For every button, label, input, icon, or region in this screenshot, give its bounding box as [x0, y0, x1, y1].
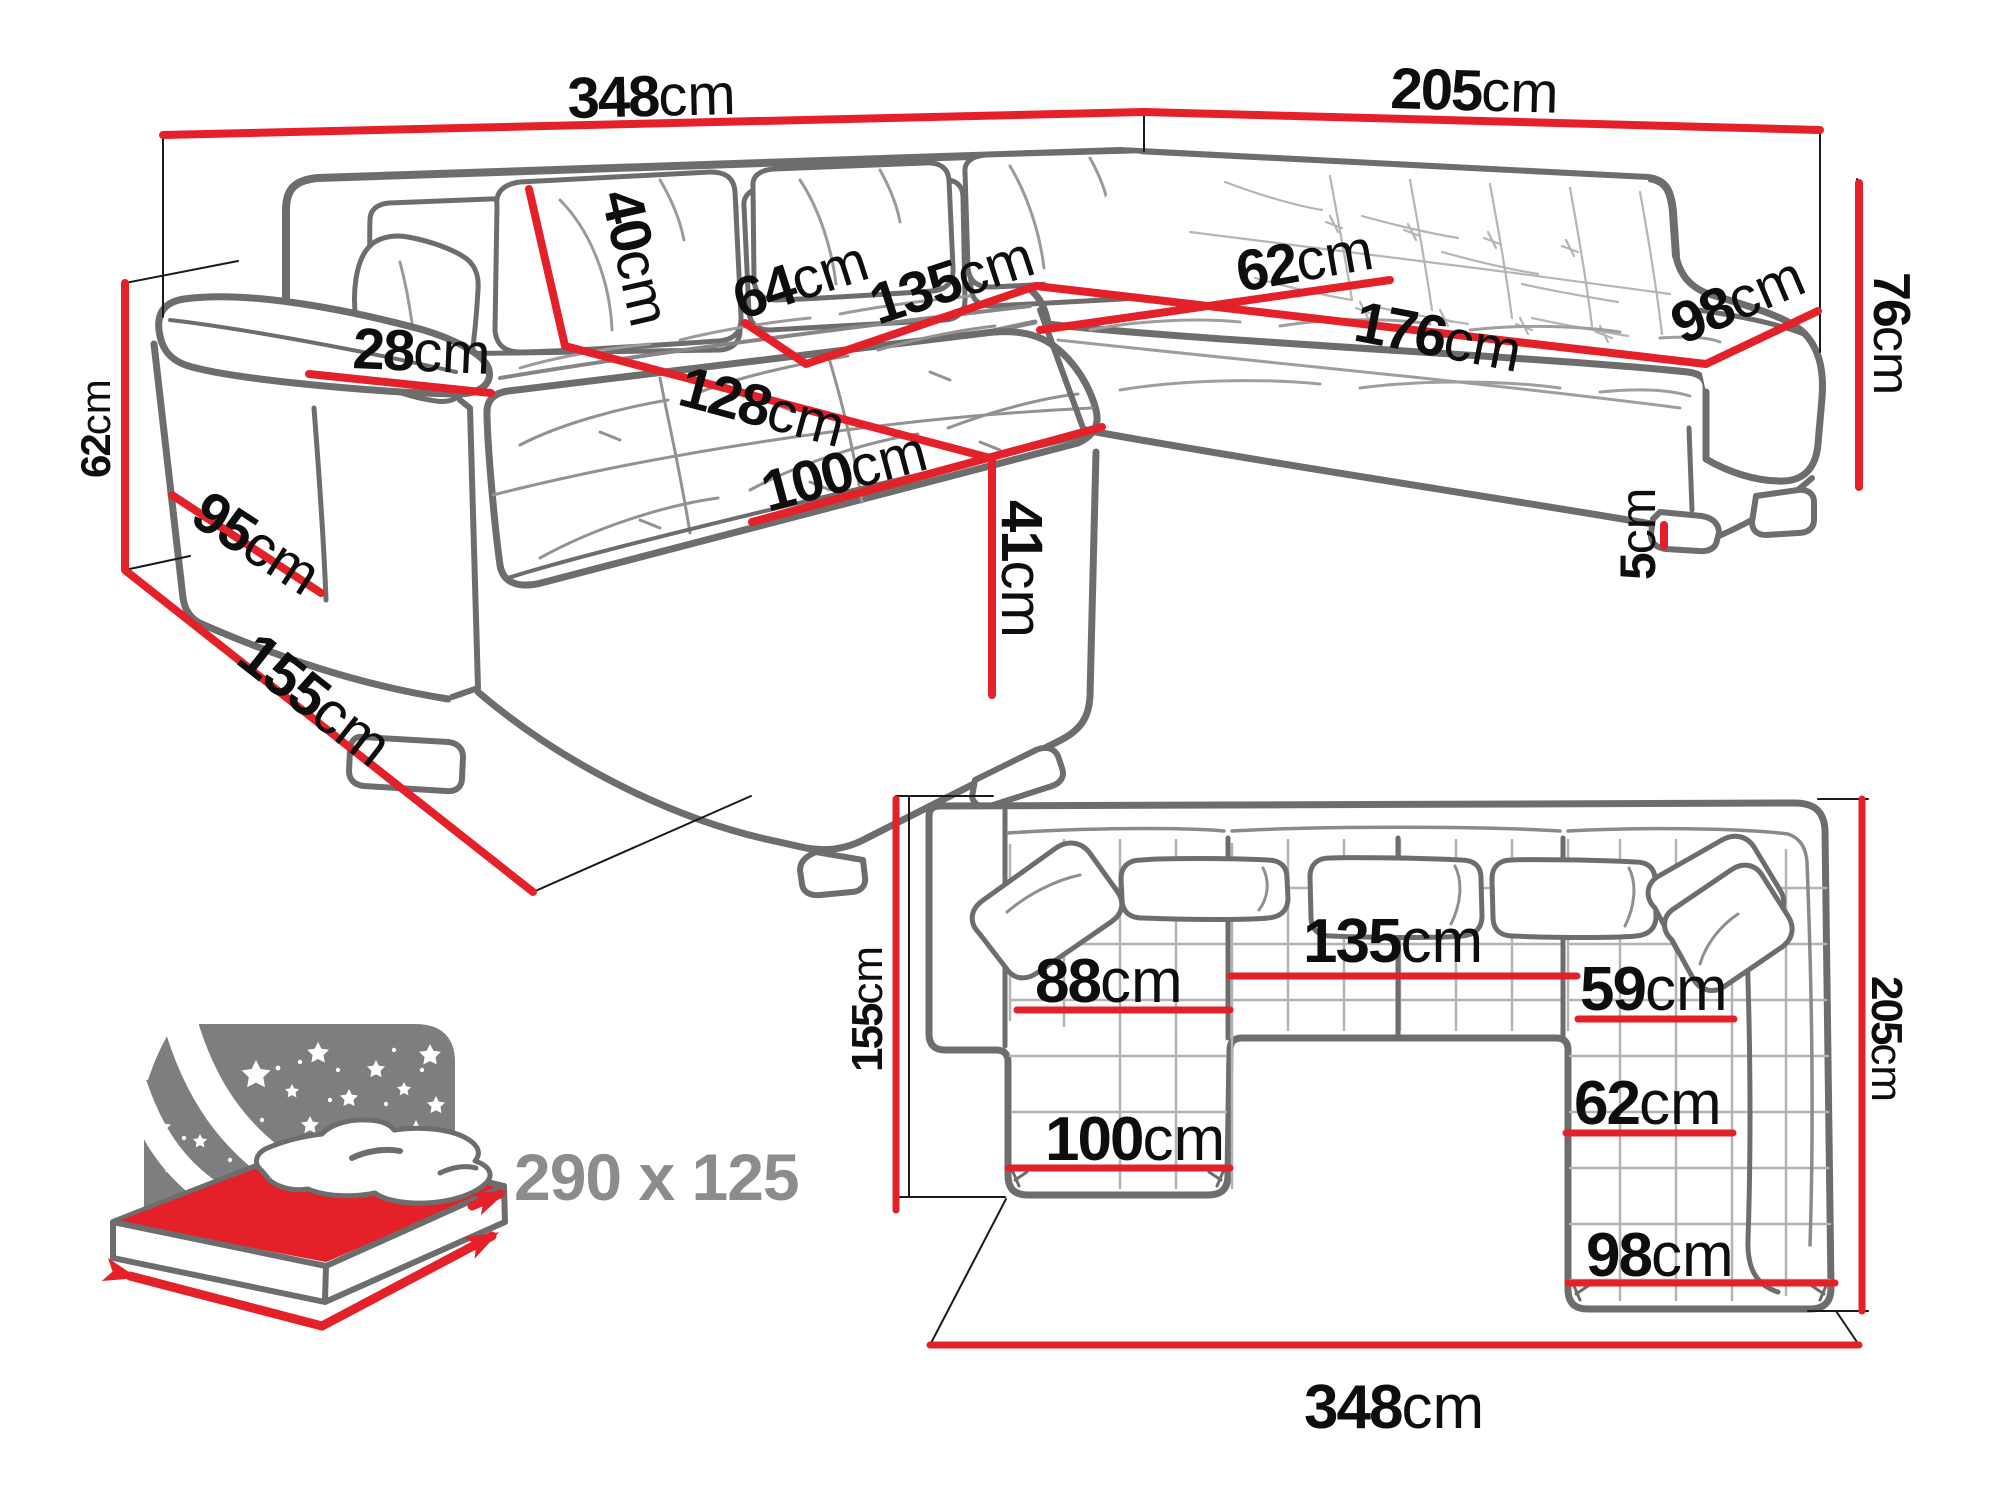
svg-text:5cm: 5cm [1610, 488, 1666, 580]
svg-text:155cm: 155cm [226, 619, 404, 779]
svg-text:205cm: 205cm [1862, 976, 1911, 1102]
svg-text:62cm: 62cm [1574, 1069, 1722, 1138]
svg-text:348cm: 348cm [1304, 1373, 1484, 1442]
svg-text:88cm: 88cm [1035, 947, 1183, 1016]
svg-text:290 x 125: 290 x 125 [514, 1140, 799, 1214]
svg-text:62cm: 62cm [72, 379, 119, 478]
svg-text:155cm: 155cm [843, 946, 892, 1072]
svg-text:76cm: 76cm [1862, 272, 1920, 395]
svg-text:41cm: 41cm [989, 500, 1054, 638]
svg-text:348cm: 348cm [567, 62, 737, 131]
svg-text:205cm: 205cm [1390, 56, 1560, 126]
svg-text:28cm: 28cm [351, 316, 492, 387]
svg-text:135cm: 135cm [1303, 907, 1483, 976]
svg-text:100cm: 100cm [1045, 1105, 1225, 1174]
svg-text:59cm: 59cm [1580, 955, 1728, 1024]
svg-text:98cm: 98cm [1586, 1221, 1734, 1290]
